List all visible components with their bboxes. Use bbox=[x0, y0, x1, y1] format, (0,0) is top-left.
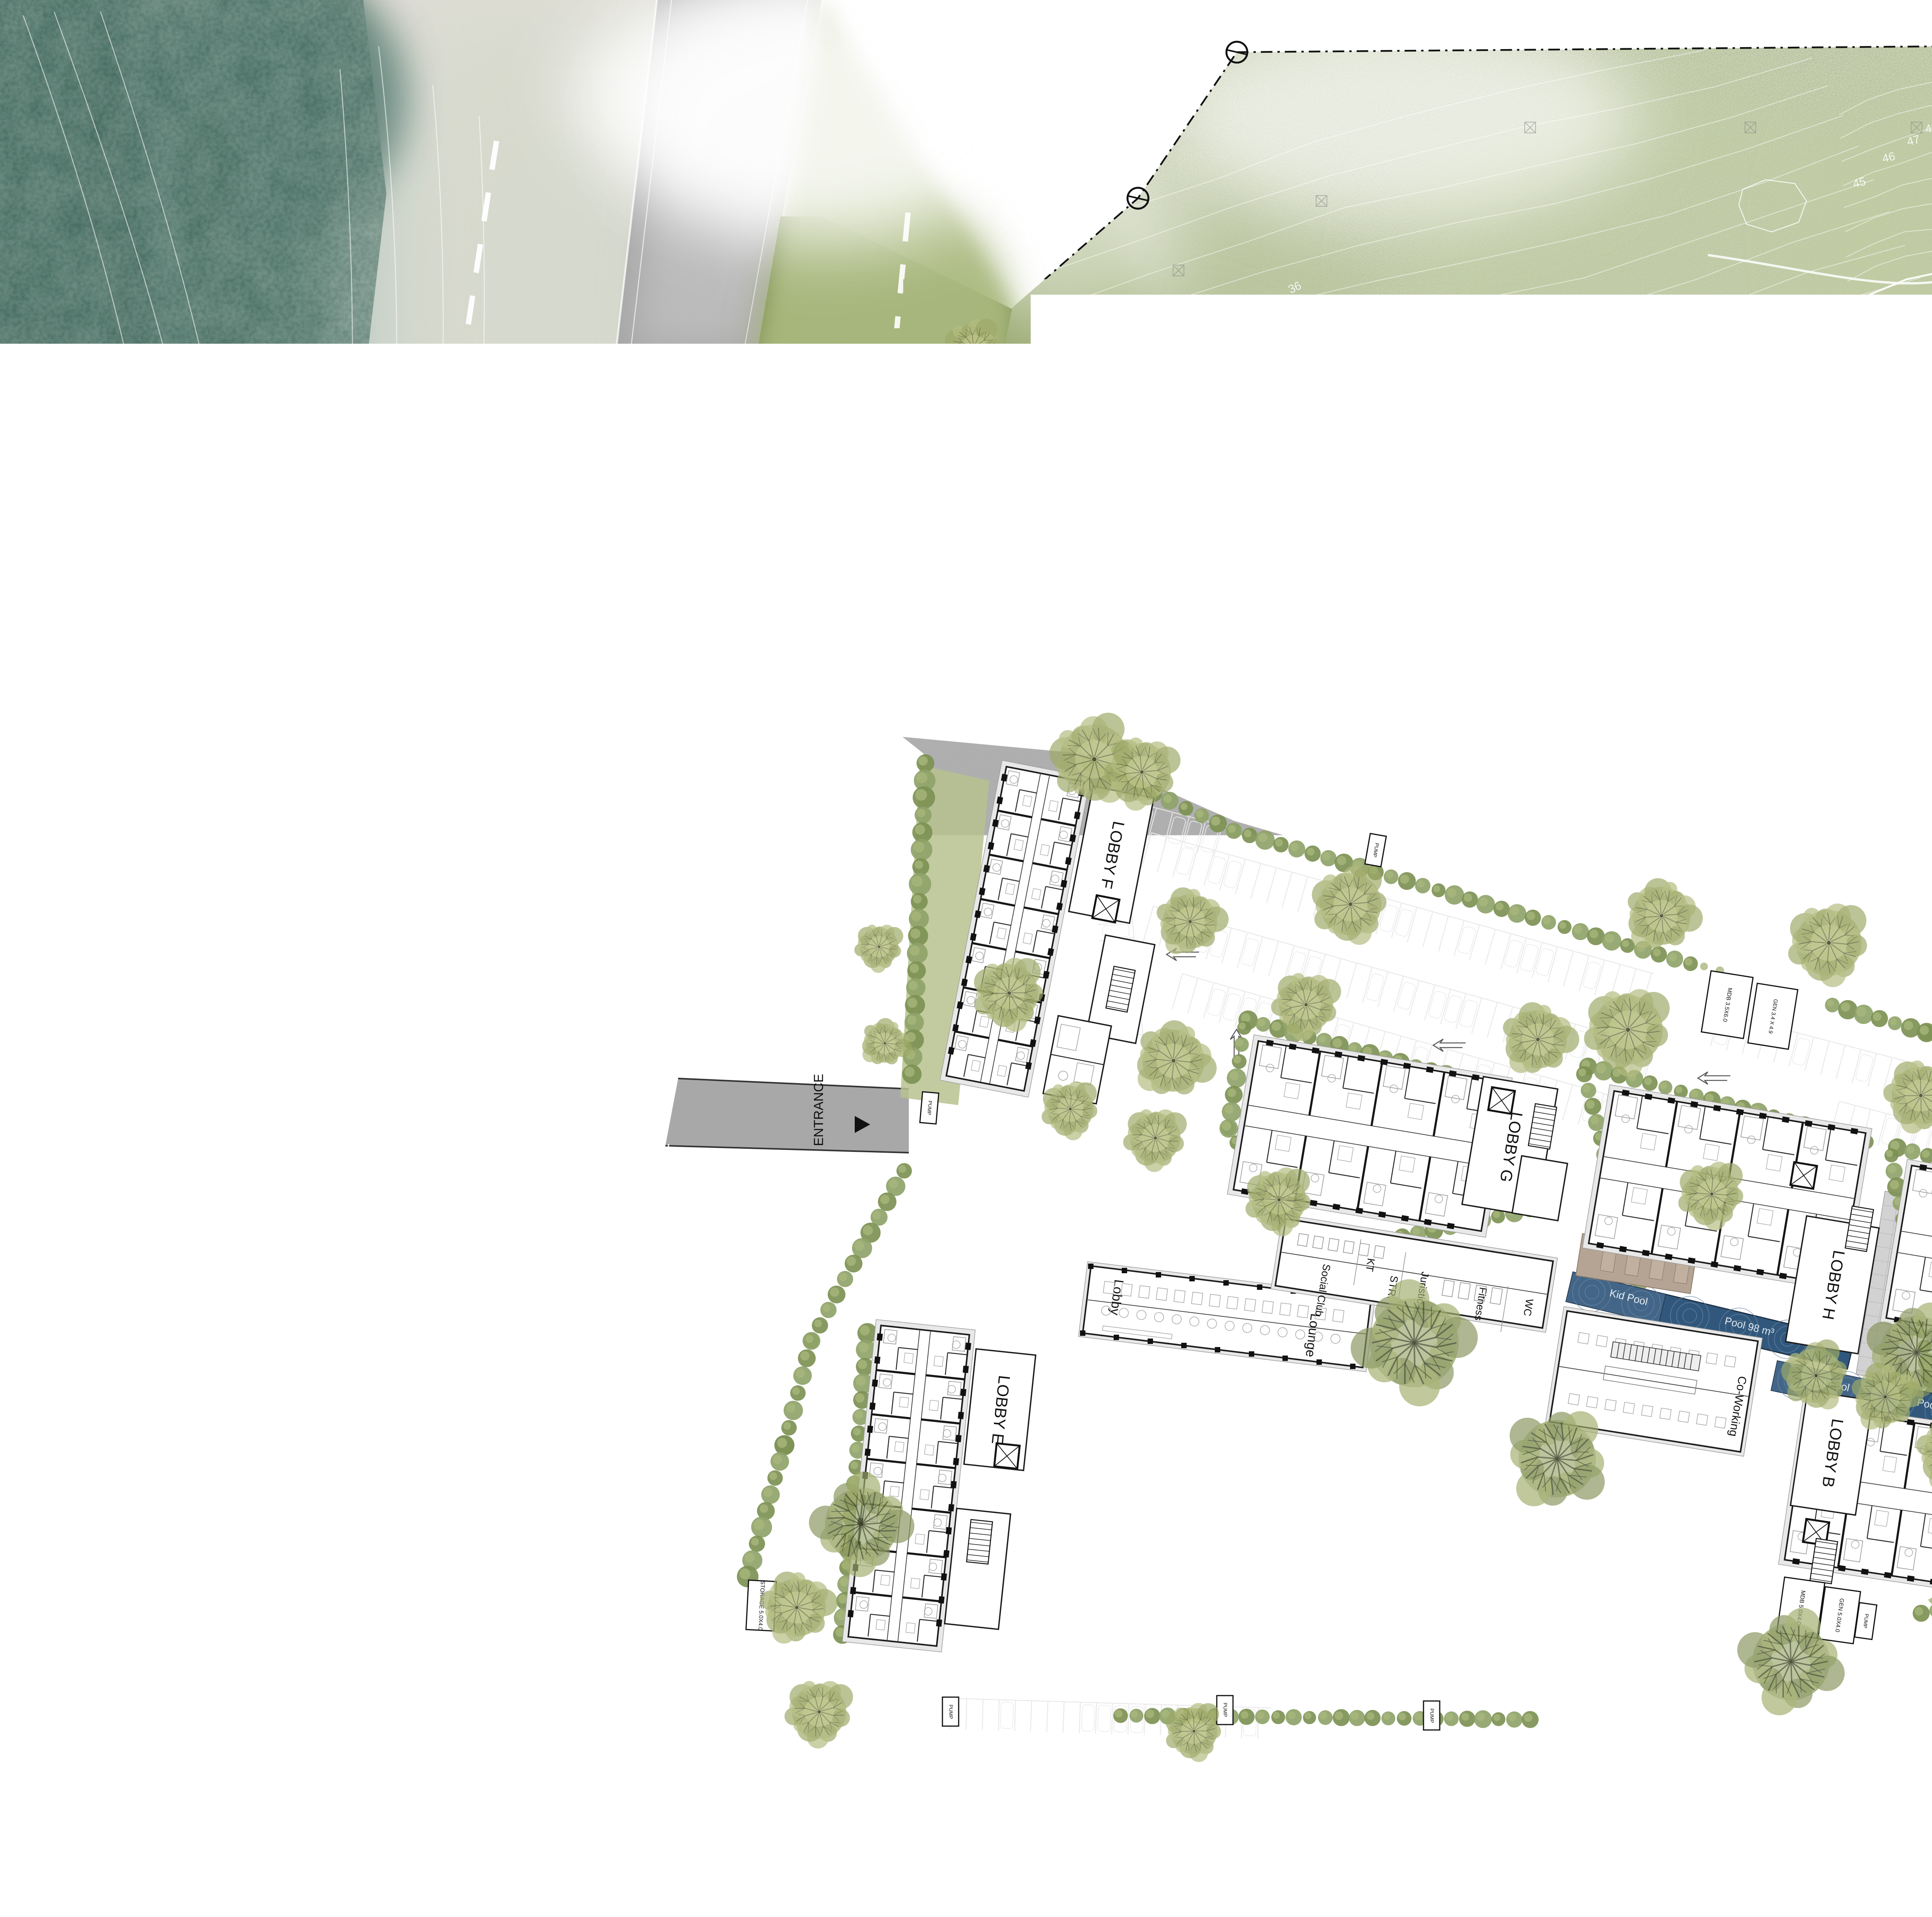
svg-text:47.00: 47.00 bbox=[947, 784, 983, 800]
svg-text:PHASE: PHASE bbox=[1390, 519, 1533, 565]
svg-text:H101: H101 bbox=[1737, 1039, 1771, 1055]
svg-text:E102: E102 bbox=[805, 1586, 838, 1602]
svg-text:47.00: 47.00 bbox=[1385, 999, 1421, 1015]
svg-text:47.00: 47.00 bbox=[939, 833, 975, 849]
svg-text:GB: GB bbox=[1580, 1588, 1594, 1598]
svg-text:B101: B101 bbox=[1874, 1588, 1907, 1604]
svg-text:E107: E107 bbox=[948, 767, 981, 783]
svg-text:F105: F105 bbox=[924, 869, 956, 885]
svg-text:D107: D107 bbox=[1235, 1408, 1269, 1424]
svg-text:GB: GB bbox=[1509, 1092, 1522, 1103]
svg-text:G102: G102 bbox=[1385, 982, 1420, 998]
svg-text:47.00: 47.00 bbox=[1165, 1643, 1201, 1659]
svg-text:D103: D103 bbox=[1086, 1628, 1120, 1644]
svg-text:B107: B107 bbox=[1866, 1373, 1899, 1389]
svg-text:47.00: 47.00 bbox=[890, 1034, 926, 1050]
svg-text:1/750: 1/750 bbox=[19, 1816, 36, 1855]
svg-text:H106: H106 bbox=[1699, 1264, 1733, 1280]
svg-text:D102: D102 bbox=[1127, 1642, 1161, 1658]
svg-text:EE: EE bbox=[1524, 1087, 1537, 1098]
svg-text:C101: C101 bbox=[1525, 1648, 1559, 1664]
svg-text:BUILDING C: BUILDING C bbox=[1567, 1750, 1696, 1775]
svg-text:EE: EE bbox=[1014, 1430, 1024, 1442]
svg-text:BUILDING F: BUILDING F bbox=[1058, 714, 1184, 739]
svg-text:47.00: 47.00 bbox=[1284, 1182, 1320, 1198]
svg-text:C102: C102 bbox=[1475, 1638, 1509, 1654]
svg-text:47.00: 47.00 bbox=[811, 1555, 847, 1570]
svg-text:47.00: 47.00 bbox=[820, 1503, 855, 1519]
svg-text:47.00: 47.00 bbox=[1895, 1346, 1931, 1362]
svg-text:47.00: 47.00 bbox=[922, 886, 958, 902]
svg-text:47.00: 47.00 bbox=[920, 929, 956, 945]
svg-text:BUILDING B: BUILDING B bbox=[1816, 1701, 1932, 1726]
svg-text:47.00: 47.00 bbox=[1649, 1260, 1685, 1276]
svg-text:PUMP: PUMP bbox=[1223, 1703, 1228, 1717]
svg-text:STR: STR bbox=[1139, 974, 1150, 992]
svg-text:G101: G101 bbox=[1430, 971, 1466, 987]
svg-text:47.00: 47.00 bbox=[1736, 1056, 1772, 1072]
svg-text:F101: F101 bbox=[1110, 1032, 1143, 1048]
svg-text:D101: D101 bbox=[1165, 1626, 1199, 1642]
svg-text:F102: F102 bbox=[892, 1017, 924, 1033]
svg-text:47.00: 47.00 bbox=[1360, 1433, 1396, 1449]
svg-text:47.00: 47.00 bbox=[1327, 986, 1363, 1002]
svg-text:47.00: 47.00 bbox=[804, 1603, 840, 1619]
svg-text:47.00: 47.00 bbox=[1091, 1424, 1127, 1439]
svg-text:BUILDING E: BUILDING E bbox=[992, 1780, 1119, 1805]
svg-text:47.00: 47.00 bbox=[1442, 1214, 1478, 1230]
svg-text:H102: H102 bbox=[1685, 1032, 1719, 1048]
svg-text:47.00: 47.00 bbox=[832, 1408, 868, 1424]
svg-text:C103: C103 bbox=[1425, 1626, 1459, 1642]
svg-text:C105: C105 bbox=[1405, 1424, 1439, 1440]
svg-text:G106: G106 bbox=[1392, 1177, 1427, 1193]
svg-text:BUILDING D: BUILDING D bbox=[1265, 1780, 1393, 1805]
svg-text:H105: H105 bbox=[1650, 1243, 1684, 1259]
svg-text:G105: G105 bbox=[1341, 1184, 1376, 1200]
svg-text:PUMP: PUMP bbox=[1429, 1708, 1435, 1723]
svg-text:47.00: 47.00 bbox=[904, 978, 940, 994]
svg-text:47.00: 47.00 bbox=[1454, 1426, 1490, 1442]
svg-text:47.00: 47.00 bbox=[1142, 1435, 1178, 1451]
svg-text:47.00: 47.00 bbox=[1748, 1303, 1784, 1318]
svg-text:BUILDING H: BUILDING H bbox=[1801, 859, 1930, 885]
svg-text:E103: E103 bbox=[812, 1538, 845, 1553]
svg-text:46.50: 46.50 bbox=[1109, 1050, 1145, 1065]
svg-text:47.00: 47.00 bbox=[1597, 1249, 1633, 1265]
svg-text:B102: B102 bbox=[1927, 1596, 1932, 1612]
svg-text:47.00: 47.00 bbox=[1925, 1125, 1932, 1141]
svg-text:47.00: 47.00 bbox=[825, 1457, 861, 1473]
svg-text:WC: WC bbox=[1118, 962, 1129, 978]
svg-text:47.00: 47.00 bbox=[837, 1360, 873, 1376]
svg-text:D104: D104 bbox=[1092, 1407, 1126, 1422]
svg-text:F104: F104 bbox=[922, 912, 954, 928]
svg-text:47.00: 47.00 bbox=[1085, 1645, 1121, 1661]
svg-text:47.00: 47.00 bbox=[1926, 1613, 1932, 1629]
svg-text:47.00: 47.00 bbox=[1392, 1194, 1428, 1210]
svg-text:KT: KT bbox=[1364, 1257, 1377, 1272]
svg-text:I104: I104 bbox=[1899, 1329, 1927, 1345]
svg-text:BUILDING G: BUILDING G bbox=[1506, 791, 1635, 816]
svg-text:C104: C104 bbox=[1361, 1416, 1395, 1432]
svg-text:BM.2: BM.2 bbox=[598, 1478, 625, 1490]
svg-text:POOL VILLA: POOL VILLA bbox=[1340, 462, 1583, 507]
svg-text:D105: D105 bbox=[1143, 1418, 1177, 1434]
svg-text:C107: C107 bbox=[1494, 1399, 1528, 1415]
svg-text:H103: H103 bbox=[1630, 1027, 1664, 1043]
svg-text:47.00: 47.00 bbox=[1684, 1050, 1720, 1065]
svg-text:E101: E101 bbox=[1004, 1595, 1037, 1611]
svg-text:47.00: 47.00 bbox=[1188, 1429, 1224, 1445]
svg-text:GB: GB bbox=[1821, 1538, 1834, 1548]
svg-text:C106: C106 bbox=[1455, 1409, 1489, 1425]
svg-text:E105: E105 bbox=[826, 1440, 859, 1456]
svg-text:47.00: 47.00 bbox=[1493, 1416, 1529, 1432]
svg-text:STR: STR bbox=[1548, 1151, 1566, 1162]
svg-text:47.00: 47.00 bbox=[1698, 1281, 1734, 1297]
svg-text:47.00: 47.00 bbox=[1424, 1643, 1460, 1659]
svg-text:G107: G107 bbox=[1442, 1197, 1478, 1213]
svg-text:47.00: 47.00 bbox=[1234, 1425, 1270, 1441]
svg-text:F106: F106 bbox=[941, 816, 973, 832]
svg-text:B106: B106 bbox=[1912, 1382, 1932, 1398]
svg-text:G103: G103 bbox=[1328, 969, 1363, 985]
svg-text:WC: WC bbox=[1515, 1174, 1530, 1185]
svg-text:H107: H107 bbox=[1749, 1286, 1783, 1301]
svg-text:H104: H104 bbox=[1598, 1232, 1632, 1248]
svg-text:GB: GB bbox=[998, 1436, 1009, 1449]
svg-text:47.00: 47.00 bbox=[1910, 1399, 1932, 1415]
svg-text:46.50: 46.50 bbox=[1003, 1612, 1039, 1628]
svg-text:47.00: 47.00 bbox=[1629, 1044, 1665, 1060]
svg-text:E107: E107 bbox=[838, 1343, 871, 1359]
svg-text:ENTRANCE: ENTRANCE bbox=[811, 1074, 826, 1146]
svg-text:GB: GB bbox=[1816, 1192, 1830, 1202]
svg-text:I103: I103 bbox=[1929, 1108, 1932, 1124]
svg-text:47.00: 47.00 bbox=[1474, 1655, 1510, 1671]
svg-text:GB: GB bbox=[1275, 1582, 1289, 1592]
svg-text:47.00: 47.00 bbox=[1405, 1441, 1440, 1457]
svg-text:D106: D106 bbox=[1189, 1412, 1223, 1428]
svg-text:E106: E106 bbox=[833, 1391, 866, 1407]
svg-text:BM.1: BM.1 bbox=[637, 1124, 664, 1137]
svg-text:47.00: 47.00 bbox=[1872, 1605, 1908, 1621]
svg-text:F103: F103 bbox=[906, 961, 938, 977]
svg-text:PUMP: PUMP bbox=[948, 1704, 954, 1719]
svg-text:47.00: 47.00 bbox=[1430, 988, 1466, 1004]
svg-text:47.00: 47.00 bbox=[1524, 1665, 1560, 1681]
svg-text:47.00: 47.00 bbox=[1126, 1659, 1162, 1675]
svg-text:E104: E104 bbox=[821, 1486, 854, 1502]
svg-text:STR: STR bbox=[1855, 1203, 1873, 1214]
svg-text:47.00: 47.00 bbox=[1341, 1201, 1377, 1217]
svg-text:G104: G104 bbox=[1284, 1165, 1319, 1181]
svg-text:47.00: 47.00 bbox=[1865, 1390, 1901, 1406]
